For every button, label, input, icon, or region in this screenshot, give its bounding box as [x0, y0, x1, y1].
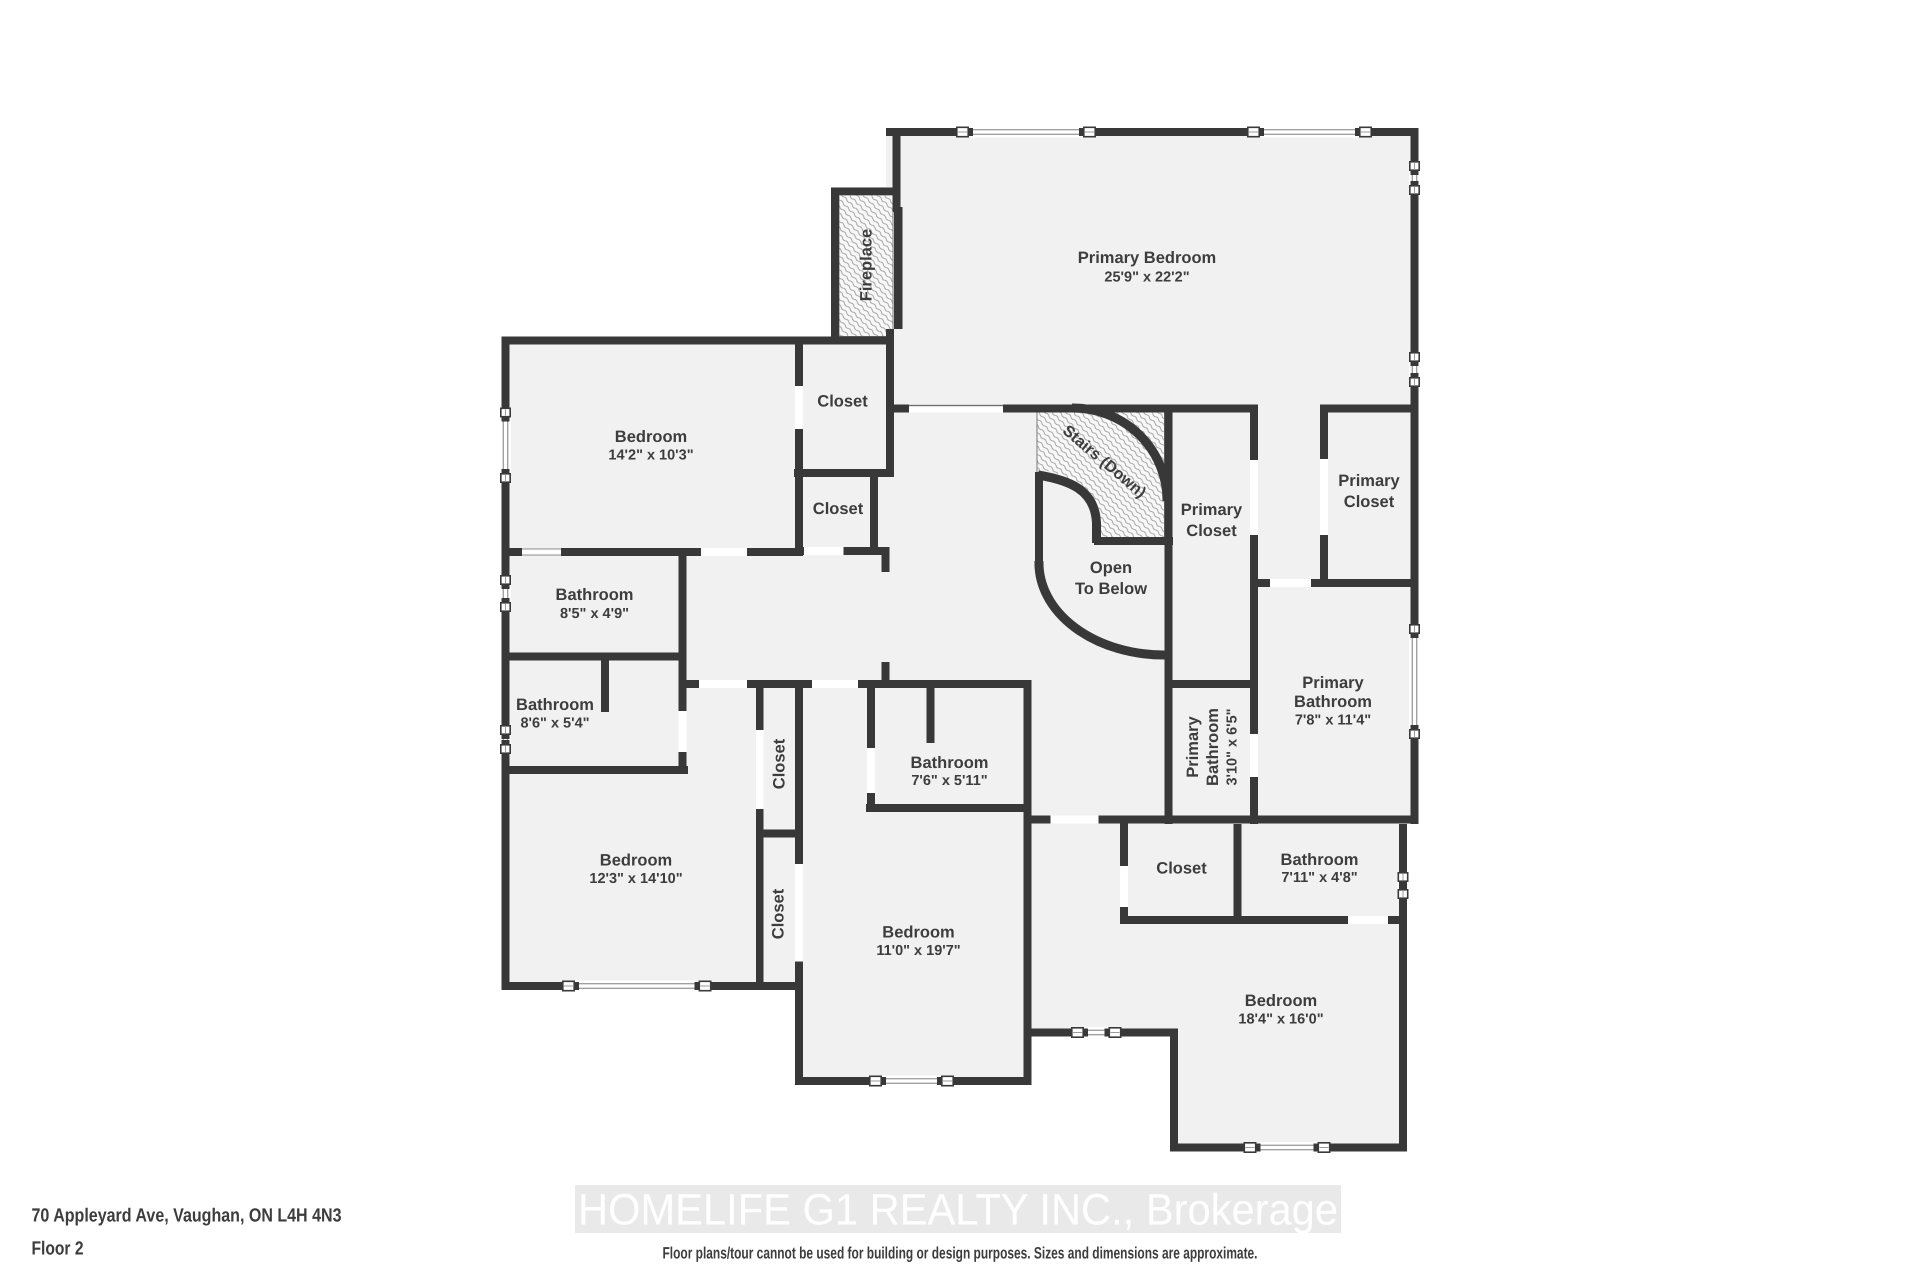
- svg-text:Bedroom: Bedroom: [1245, 992, 1317, 1010]
- svg-text:Bathroom: Bathroom: [556, 586, 634, 604]
- svg-text:Bedroom: Bedroom: [882, 924, 954, 942]
- svg-text:Bathroom: Bathroom: [1294, 693, 1372, 711]
- svg-text:Closet: Closet: [813, 500, 864, 518]
- svg-text:Bathroom: Bathroom: [911, 754, 989, 772]
- svg-text:11'0" x 19'7": 11'0" x 19'7": [876, 943, 960, 959]
- svg-text:Bathroom: Bathroom: [516, 696, 594, 714]
- svg-text:25'9" x 22'2": 25'9" x 22'2": [1104, 270, 1189, 286]
- svg-text:Primary: Primary: [1338, 472, 1400, 490]
- svg-text:7'8" x 11'4": 7'8" x 11'4": [1295, 713, 1371, 729]
- svg-text:Open: Open: [1090, 559, 1132, 577]
- svg-text:Closet: Closet: [1186, 522, 1237, 540]
- svg-text:Bathroom: Bathroom: [1204, 708, 1222, 786]
- svg-text:Closet: Closet: [771, 738, 789, 789]
- svg-text:Fireplace: Fireplace: [858, 229, 876, 301]
- svg-text:8'6" x 5'4": 8'6" x 5'4": [520, 716, 589, 732]
- svg-text:Floor plans/tour cannot be use: Floor plans/tour cannot be used for buil…: [663, 1245, 1258, 1263]
- svg-text:7'11" x 4'8": 7'11" x 4'8": [1281, 870, 1357, 886]
- svg-text:Primary: Primary: [1302, 674, 1364, 692]
- svg-text:14'2" x 10'3": 14'2" x 10'3": [608, 448, 693, 464]
- svg-text:To Below: To Below: [1075, 580, 1147, 598]
- svg-text:Closet: Closet: [1344, 493, 1395, 511]
- svg-text:Bathroom: Bathroom: [1281, 851, 1359, 869]
- svg-text:Primary: Primary: [1184, 715, 1202, 777]
- svg-text:Closet: Closet: [817, 393, 868, 411]
- svg-text:Bedroom: Bedroom: [600, 852, 672, 870]
- svg-text:18'4" x 16'0": 18'4" x 16'0": [1238, 1012, 1323, 1028]
- svg-text:3'10" x 6'5": 3'10" x 6'5": [1225, 708, 1241, 785]
- svg-text:Floor 2: Floor 2: [32, 1239, 84, 1260]
- svg-text:Bedroom: Bedroom: [615, 428, 687, 446]
- svg-text:HOMELIFE G1 REALTY INC., Broke: HOMELIFE G1 REALTY INC., Brokerage: [578, 1186, 1338, 1235]
- svg-text:Closet: Closet: [1156, 860, 1207, 878]
- svg-text:12'3" x 14'10": 12'3" x 14'10": [589, 871, 682, 887]
- svg-text:8'5" x 4'9": 8'5" x 4'9": [560, 606, 629, 622]
- svg-text:70 Appleyard Ave, Vaughan, ON: 70 Appleyard Ave, Vaughan, ON L4H 4N3: [32, 1206, 342, 1227]
- svg-text:Primary: Primary: [1181, 501, 1243, 519]
- svg-text:7'6" x 5'11": 7'6" x 5'11": [911, 773, 987, 789]
- svg-text:Primary Bedroom: Primary Bedroom: [1078, 249, 1216, 267]
- svg-text:Closet: Closet: [770, 888, 788, 939]
